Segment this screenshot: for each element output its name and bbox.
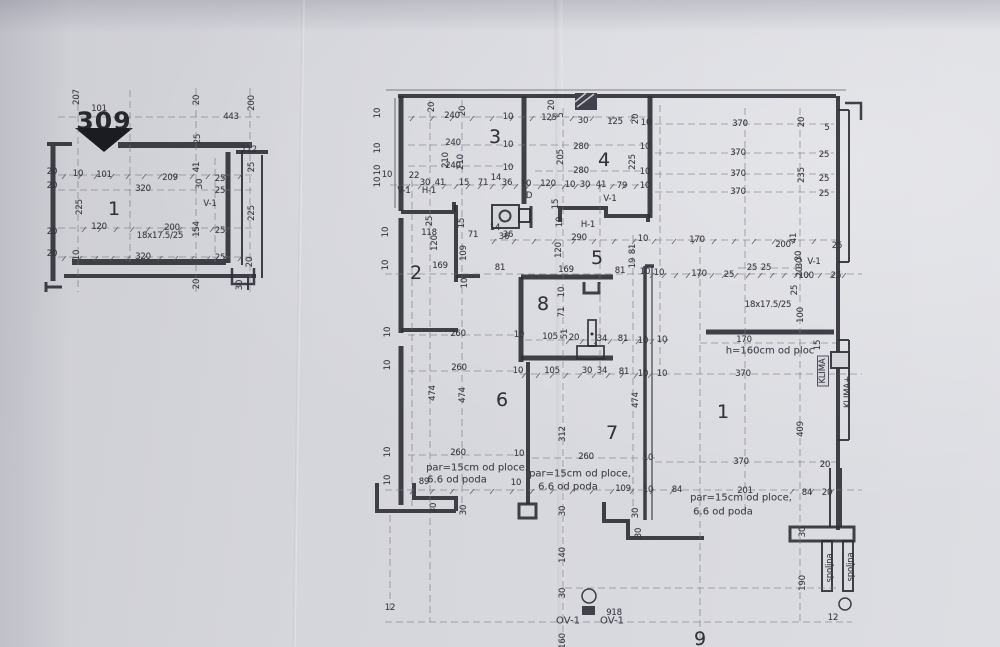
annotation: par=15cm od ploce. [426, 463, 528, 474]
room-number: 5 [591, 247, 603, 269]
dim-label: 20 [47, 249, 57, 259]
dim-label: 18x17.5/25 [745, 300, 791, 310]
dim-label: 10 [514, 330, 524, 340]
dim-label: 10 [641, 118, 651, 128]
room-number: 1 [108, 198, 120, 220]
dim-label: 20 [47, 227, 57, 237]
dim-label: 10 [643, 485, 653, 495]
dim-label: 474 [631, 392, 641, 408]
dim-label: 30 [195, 179, 205, 189]
dim-label: 12 [828, 613, 838, 623]
dim-label: 81 [619, 367, 629, 377]
dim-label: 10 [511, 478, 521, 488]
dim-label: 105 [542, 332, 558, 342]
dim-label: 10 [643, 453, 653, 463]
dim-label: 120 [430, 235, 440, 251]
dim-label: 235 [797, 167, 807, 183]
dim-label: 140 [558, 547, 568, 563]
dim-label: 25 [790, 285, 800, 295]
dim-label: 30 [429, 503, 439, 513]
dim-label: 10 [460, 278, 470, 288]
dim-label: 25 [193, 134, 203, 144]
dim-label: 409 [796, 421, 806, 437]
dim-label: 79 [617, 181, 627, 191]
dim-label: 474 [428, 385, 438, 401]
dim-label: 207 [72, 89, 82, 105]
dim-label: 20 [47, 167, 57, 177]
room-number: 8 [537, 293, 549, 315]
dim-label: 280 [573, 166, 589, 176]
dim-label: KLIMA [817, 356, 829, 387]
dim-label: 5 [824, 123, 829, 133]
dim-label: 22 [409, 171, 419, 181]
dim-label: H-1 [422, 186, 436, 196]
dim-label: V-1 [807, 257, 820, 267]
dim-label: 225 [628, 154, 638, 170]
dim-label: 112 [241, 145, 257, 155]
dim-label: 10 [503, 140, 513, 150]
dim-label: 170 [736, 335, 752, 345]
dim-label: 15 [813, 340, 823, 350]
annotation: par=15cm od ploce, [529, 469, 631, 480]
dim-label: 370 [733, 457, 749, 467]
dim-label: 225 [75, 199, 85, 215]
dim-label: 105 [544, 366, 560, 376]
dim-label: 109 [615, 484, 631, 494]
dim-label: 169 [558, 265, 574, 275]
dim-label: D [526, 191, 532, 201]
dim-label: 20 [820, 460, 830, 470]
dim-label: 474 [458, 387, 468, 403]
dim-label: 30 [578, 116, 588, 126]
dim-label: 10 [373, 143, 383, 153]
dim-label: 100 [796, 307, 806, 323]
dim-label: 25 [832, 241, 842, 251]
dim-label: 36 [499, 232, 509, 242]
dim-label: 10 [557, 287, 567, 297]
dim-label: 30 [235, 280, 245, 290]
dim-label: spoljna [846, 553, 856, 582]
dim-label: 71 [468, 230, 478, 240]
dim-label: 20 [797, 117, 807, 127]
annotation: OV-1 [556, 616, 580, 627]
dim-label: 205 [556, 149, 566, 165]
room-number: 3 [489, 126, 501, 148]
dim-label: 225 [247, 205, 257, 221]
dim-label: 20 [822, 488, 832, 498]
annotation: 6.6 od poda [538, 482, 598, 493]
dim-label: 30 [631, 508, 641, 518]
dim-label: 25 [761, 263, 771, 273]
dim-label: 260 [451, 363, 467, 373]
dim-label: 89 [419, 477, 429, 487]
dim-label: KLIMA+ [843, 376, 853, 408]
dim-label: 10 [514, 449, 524, 459]
dim-label: 190 [798, 575, 808, 591]
dim-label: 169 [432, 261, 448, 271]
dim-label: 370 [735, 369, 751, 379]
dim-label: 10 [383, 475, 393, 485]
dim-label: 25 [425, 216, 435, 226]
dim-label: 5 [556, 112, 566, 117]
dim-label: 84 [672, 485, 682, 495]
dim-label: 18x17.5/25 [137, 231, 183, 241]
dim-label: 320 [135, 252, 151, 262]
dim-label: 170 [691, 269, 707, 279]
room-number: 4 [598, 149, 610, 171]
dim-label: 84 [802, 488, 812, 498]
dim-label: 312 [558, 426, 568, 442]
dim-label: 20 [427, 102, 437, 112]
dim-label: 240 [445, 138, 461, 148]
dim-label: 25 [215, 226, 225, 236]
dim-label: 10 [503, 163, 513, 173]
dim-label: 120 [540, 179, 556, 189]
dim-label: 10 [382, 170, 392, 180]
room-number: 6 [496, 389, 508, 411]
dim-label: 10 [638, 369, 648, 379]
dim-label: 25 [831, 271, 841, 281]
dim-label: 209 [162, 173, 178, 183]
dim-label: 10 [555, 217, 565, 227]
dim-label: 10 [72, 250, 82, 260]
dim-label: 19 [628, 258, 638, 268]
dim-label: 10 [640, 181, 650, 191]
annotation: 6.6 od poda [427, 475, 487, 486]
dim-label: 20 [192, 95, 202, 105]
dim-label: 10 [657, 369, 667, 379]
dim-label: 20 [458, 106, 468, 116]
dim-label: 12 [385, 603, 395, 613]
dim-label: 25 [819, 150, 829, 160]
annotation: OV-1 [600, 616, 624, 627]
dim-label: 120 [91, 222, 107, 232]
dim-label: 25 [724, 270, 734, 280]
dim-label: 15 [551, 199, 561, 209]
dim-label: 10 [640, 267, 650, 277]
dim-label: 20 [569, 333, 579, 343]
dim-label: 81 [618, 334, 628, 344]
dim-label: 25 [247, 162, 257, 172]
dim-label: 10 [565, 180, 575, 190]
dim-label: 30 [580, 180, 590, 190]
dim-label: 10 [73, 169, 83, 179]
dim-label: 20 [547, 100, 557, 110]
dim-label: 20 [192, 279, 202, 289]
dim-label: 290 [571, 233, 587, 243]
dim-label: 10 [381, 260, 391, 270]
dim-label: 71 [478, 178, 488, 188]
room-number: 1 [717, 401, 729, 423]
labels-layer: 2071013092044320025112254120101012092530… [0, 0, 1000, 647]
dim-label: 260 [578, 452, 594, 462]
dim-label: 20 [631, 114, 641, 124]
dim-label: 10 [638, 336, 648, 346]
dim-label: 125 [607, 117, 623, 127]
dim-label: 370 [730, 169, 746, 179]
dim-label: 100 [798, 271, 814, 281]
dim-label: 30 [558, 588, 568, 598]
dim-label: 25 [215, 253, 225, 263]
dim-label: V-1 [603, 194, 616, 204]
dim-label: 154 [192, 221, 202, 237]
dim-label: H-1 [581, 220, 595, 230]
room-number: 2 [410, 262, 422, 284]
dim-label: 25 [747, 263, 757, 273]
dim-label: 200 [247, 95, 257, 111]
dim-label: 25 [215, 174, 225, 184]
dim-label: 10 [383, 327, 393, 337]
dim-label: 10 [503, 112, 513, 122]
dim-label: 20 [245, 257, 255, 267]
dim-label: 25 [819, 174, 829, 184]
dim-label: 81 [628, 244, 638, 254]
dim-label: 30 [582, 366, 592, 376]
dim-label: 30 [459, 505, 469, 515]
dim-label: 200 [775, 240, 791, 250]
dim-label: 210 [456, 154, 466, 170]
dim-label: 81 [615, 266, 625, 276]
dim-label: 34 [597, 366, 607, 376]
dim-label: 10 [383, 447, 393, 457]
dim-label: 109 [459, 245, 469, 261]
dim-label: V-1 [203, 199, 216, 209]
dim-label: 14 [491, 173, 501, 183]
dim-label: 10 [640, 167, 650, 177]
scanned-floorplan-photo: 2071013092044320025112254120101012092530… [0, 0, 1000, 647]
annotation: 6.6 od poda [693, 507, 753, 518]
dim-label: 10 [654, 268, 664, 278]
dim-label: 15 [459, 178, 469, 188]
dim-label: 10 [638, 234, 648, 244]
dim-label: 41 [192, 162, 202, 172]
dim-label: 160 [558, 633, 568, 647]
dim-label: 41 [435, 178, 445, 188]
dim-label: 81 [495, 263, 505, 273]
dim-label: 10 [381, 227, 391, 237]
dim-label: 280 [573, 142, 589, 152]
room-number: 9 [694, 628, 706, 647]
dim-label: 30 [634, 528, 644, 538]
dim-label: 10 [373, 108, 383, 118]
dim-label: 101 [96, 170, 112, 180]
dim-label: 10 [640, 142, 650, 152]
dim-label: 36 [502, 178, 512, 188]
dim-label: 20 [47, 181, 57, 191]
dim-label: V-1 [397, 186, 410, 196]
dim-label: 30 [798, 527, 808, 537]
dim-label: 370 [732, 119, 748, 129]
annotation: par=15cm od ploce, [690, 493, 792, 504]
dim-label: 30 [558, 506, 568, 516]
dim-label: 10 [521, 179, 531, 189]
dim-label: 170 [689, 235, 705, 245]
dim-label: 41 [596, 180, 606, 190]
dim-label: spoljna [825, 554, 835, 583]
dim-label: 34 [597, 334, 607, 344]
dim-label: 10 [513, 366, 523, 376]
section-mark: 309 [76, 107, 131, 136]
dim-label: 320 [135, 184, 151, 194]
dim-label: 260 [450, 329, 466, 339]
dim-label: 443 [223, 112, 239, 122]
dim-label: 25 [819, 189, 829, 199]
annotation: h=160cm od ploc [726, 346, 815, 357]
dim-label: 370 [730, 187, 746, 197]
dim-label: 120 [554, 242, 564, 258]
dim-label: 260 [450, 448, 466, 458]
dim-label: 10 [383, 360, 393, 370]
room-number: 7 [606, 422, 618, 444]
dim-label: 10 [657, 335, 667, 345]
dim-label: 15 [457, 218, 467, 228]
dim-label: 25 [215, 186, 225, 196]
dim-label: 71 [557, 307, 567, 317]
dim-label: 125 [541, 113, 557, 123]
dim-label: 370 [730, 148, 746, 158]
